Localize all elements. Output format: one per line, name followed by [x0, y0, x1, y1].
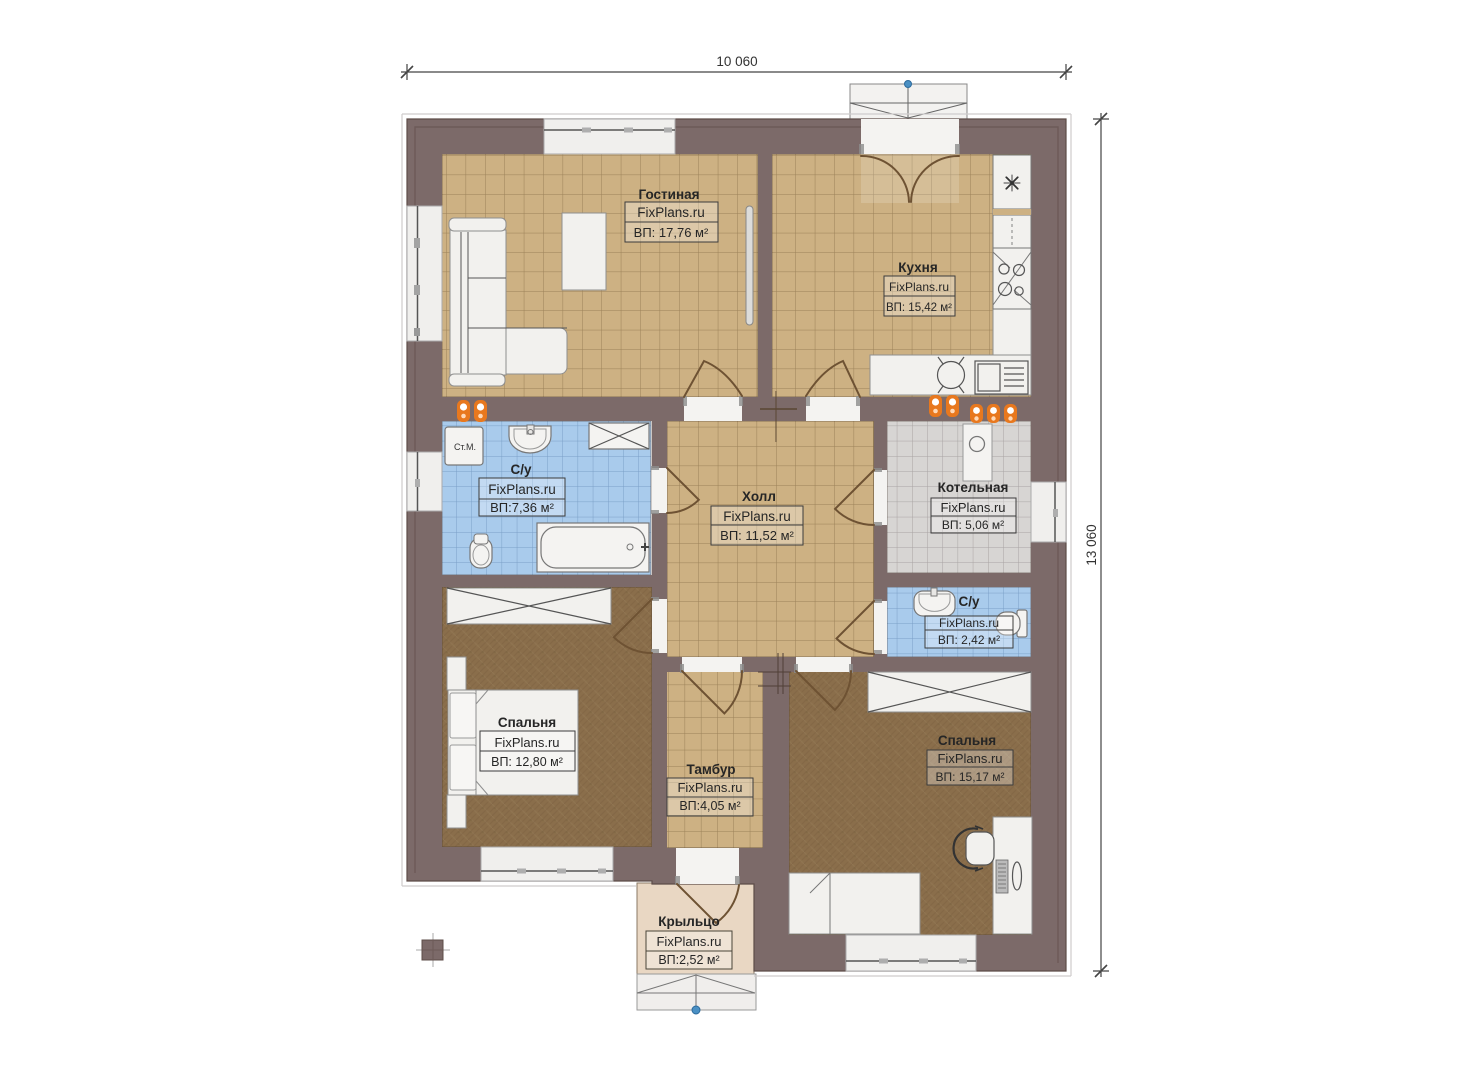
- svg-text:Гостиная: Гостиная: [638, 187, 699, 202]
- svg-text:Тамбур: Тамбур: [687, 762, 736, 777]
- svg-text:FixPlans.ru: FixPlans.ru: [677, 780, 742, 795]
- svg-text:ВП: 15,42 м²: ВП: 15,42 м²: [886, 302, 952, 314]
- svg-text:Ст.М.: Ст.М.: [454, 442, 476, 452]
- svg-text:ВП:7,36 м²: ВП:7,36 м²: [490, 500, 554, 515]
- svg-text:FixPlans.ru: FixPlans.ru: [940, 500, 1005, 515]
- svg-text:FixPlans.ru: FixPlans.ru: [494, 735, 559, 750]
- svg-text:Холл: Холл: [742, 489, 776, 504]
- svg-text:ВП:4,05 м²: ВП:4,05 м²: [679, 799, 740, 813]
- svg-text:ВП: 15,17 м²: ВП: 15,17 м²: [936, 770, 1005, 784]
- svg-text:FixPlans.ru: FixPlans.ru: [656, 934, 721, 949]
- svg-text:FixPlans.ru: FixPlans.ru: [637, 205, 705, 220]
- svg-text:Крыльцо: Крыльцо: [658, 914, 719, 929]
- svg-text:ВП: 5,06 м²: ВП: 5,06 м²: [942, 518, 1004, 532]
- svg-text:ВП:2,52 м²: ВП:2,52 м²: [658, 953, 719, 967]
- svg-text:ВП: 17,76 м²: ВП: 17,76 м²: [634, 225, 709, 240]
- svg-text:FixPlans.ru: FixPlans.ru: [939, 616, 999, 630]
- svg-text:FixPlans.ru: FixPlans.ru: [488, 482, 556, 497]
- svg-text:13 060: 13 060: [1084, 524, 1099, 565]
- svg-text:ВП: 11,52 м²: ВП: 11,52 м²: [720, 528, 794, 543]
- svg-text:С/у: С/у: [510, 462, 532, 477]
- svg-text:С/у: С/у: [958, 594, 980, 609]
- svg-text:FixPlans.ru: FixPlans.ru: [723, 509, 791, 524]
- svg-text:FixPlans.ru: FixPlans.ru: [937, 751, 1002, 766]
- svg-text:Котельная: Котельная: [938, 480, 1009, 495]
- svg-text:FixPlans.ru: FixPlans.ru: [889, 280, 949, 294]
- svg-text:Спальня: Спальня: [498, 715, 556, 730]
- svg-text:ВП: 2,42 м²: ВП: 2,42 м²: [938, 633, 1000, 647]
- svg-text:ВП: 12,80 м²: ВП: 12,80 м²: [491, 755, 563, 769]
- svg-text:Спальня: Спальня: [938, 733, 996, 748]
- svg-text:Кухня: Кухня: [898, 260, 937, 275]
- svg-text:10 060: 10 060: [716, 54, 757, 69]
